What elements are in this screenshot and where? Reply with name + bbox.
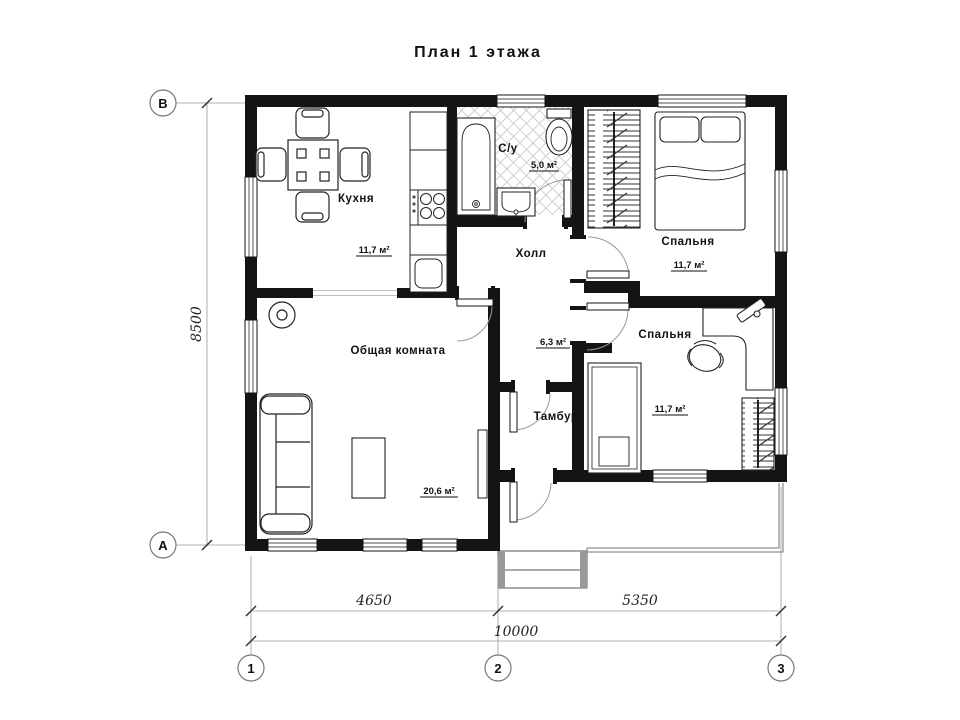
kitchen-counter <box>410 112 447 292</box>
round-stool <box>269 302 295 328</box>
area-bathroom: 5,0 м² <box>531 160 557 171</box>
window <box>245 177 257 257</box>
stove <box>410 190 447 225</box>
axis-marker-col-3: 3 <box>768 655 794 681</box>
window <box>245 320 257 393</box>
label-tambur: Тамбур <box>534 411 579 423</box>
coffee-table <box>352 438 385 498</box>
svg-text:1: 1 <box>247 661 254 676</box>
window <box>363 539 407 551</box>
double-bed <box>655 112 745 230</box>
svg-text:В: В <box>158 96 167 111</box>
svg-text:2: 2 <box>494 661 501 676</box>
door-entrance <box>510 482 551 522</box>
sofa <box>260 394 312 534</box>
tv <box>478 430 487 498</box>
washbasin <box>497 188 535 216</box>
dim-height: 8500 <box>189 306 205 342</box>
dim-width-right: 5350 <box>622 593 658 609</box>
porch-steps <box>498 551 587 588</box>
door-living-room <box>457 299 493 341</box>
area-bedroom-bottom: 11,7 м² <box>655 404 686 415</box>
kitchen-sink <box>410 255 447 292</box>
axis-marker-row-top: В <box>150 90 176 116</box>
label-living-room: Общая комната <box>350 345 445 357</box>
office-chair <box>686 341 724 376</box>
area-bedroom-top: 11,7 м² <box>674 260 705 271</box>
svg-text:А: А <box>158 538 168 553</box>
page-title: План 1 этажа <box>414 44 542 61</box>
label-kitchen: Кухня <box>338 193 374 205</box>
window <box>658 95 746 107</box>
door-bedroom-top <box>587 237 629 278</box>
area-hall: 6,3 м² <box>540 337 566 348</box>
label-bedroom-top: Спальня <box>661 236 714 248</box>
window <box>497 95 545 107</box>
label-hall: Холл <box>516 248 547 260</box>
window <box>422 539 457 551</box>
axis-marker-col-1: 1 <box>238 655 264 681</box>
single-bed <box>588 363 641 473</box>
label-bathroom: С/у <box>498 143 518 155</box>
axis-marker-row-bottom: А <box>150 532 176 558</box>
bathtub <box>457 118 495 215</box>
window <box>268 539 317 551</box>
floor-plan-page: План 1 этажа <box>0 0 960 720</box>
area-kitchen: 11,7 м² <box>359 245 390 256</box>
desk <box>703 298 773 390</box>
area-living-room: 20,6 м² <box>423 486 454 497</box>
wardrobe <box>742 398 774 470</box>
label-bedroom-bottom: Спальня <box>638 329 691 341</box>
axis-marker-col-2: 2 <box>485 655 511 681</box>
toilet <box>546 109 572 155</box>
window <box>653 470 707 482</box>
closet-hangers <box>588 110 640 228</box>
dim-width-total: 10000 <box>494 624 539 640</box>
floor-plan-canvas: План 1 этажа <box>0 0 960 720</box>
window <box>775 170 787 252</box>
dim-width-left: 4650 <box>355 593 392 609</box>
svg-text:3: 3 <box>777 661 784 676</box>
window <box>775 388 787 455</box>
terrace-outline <box>587 483 783 552</box>
door-bedroom-bottom <box>587 303 629 350</box>
